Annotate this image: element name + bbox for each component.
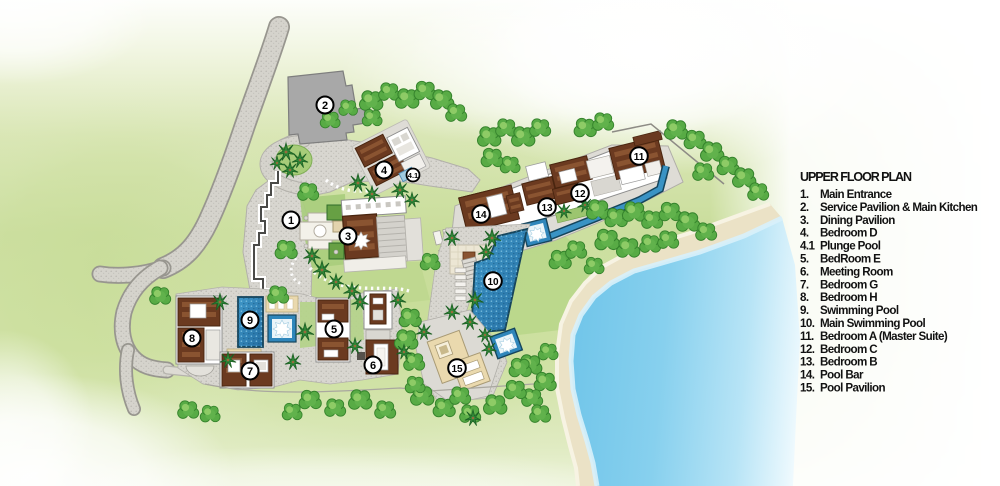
svg-text:11: 11 — [634, 152, 645, 163]
svg-text:6: 6 — [370, 360, 376, 372]
svg-text:4.1Plunge Pool: 4.1Plunge Pool — [800, 240, 881, 253]
svg-text:7: 7 — [247, 366, 253, 378]
svg-text:5: 5 — [331, 324, 337, 336]
svg-text:8: 8 — [189, 333, 195, 345]
svg-text:9: 9 — [247, 315, 253, 327]
svg-text:2.Service Pavilion & Main Kitc: 2.Service Pavilion & Main Kitchen — [800, 201, 978, 214]
svg-text:13.Bedroom B: 13.Bedroom B — [800, 356, 877, 369]
svg-text:2: 2 — [322, 100, 328, 112]
svg-text:4.1: 4.1 — [408, 171, 418, 180]
svg-text:UPPER FLOOR PLAN: UPPER FLOOR PLAN — [800, 170, 912, 184]
svg-text:14: 14 — [475, 210, 487, 221]
svg-text:15.Pool Pavilion: 15.Pool Pavilion — [800, 382, 886, 395]
svg-text:13: 13 — [541, 203, 553, 214]
svg-text:14.Pool Bar: 14.Pool Bar — [800, 369, 864, 382]
svg-text:1: 1 — [288, 215, 294, 227]
svg-text:3: 3 — [345, 231, 351, 243]
svg-text:12: 12 — [574, 189, 586, 200]
svg-text:4: 4 — [381, 165, 388, 177]
svg-text:15: 15 — [451, 364, 463, 375]
svg-text:10: 10 — [487, 277, 499, 288]
svg-text:12.Bedroom C: 12.Bedroom C — [800, 343, 878, 356]
svg-text:11.Bedroom A (Master Suite): 11.Bedroom A (Master Suite) — [800, 330, 948, 343]
